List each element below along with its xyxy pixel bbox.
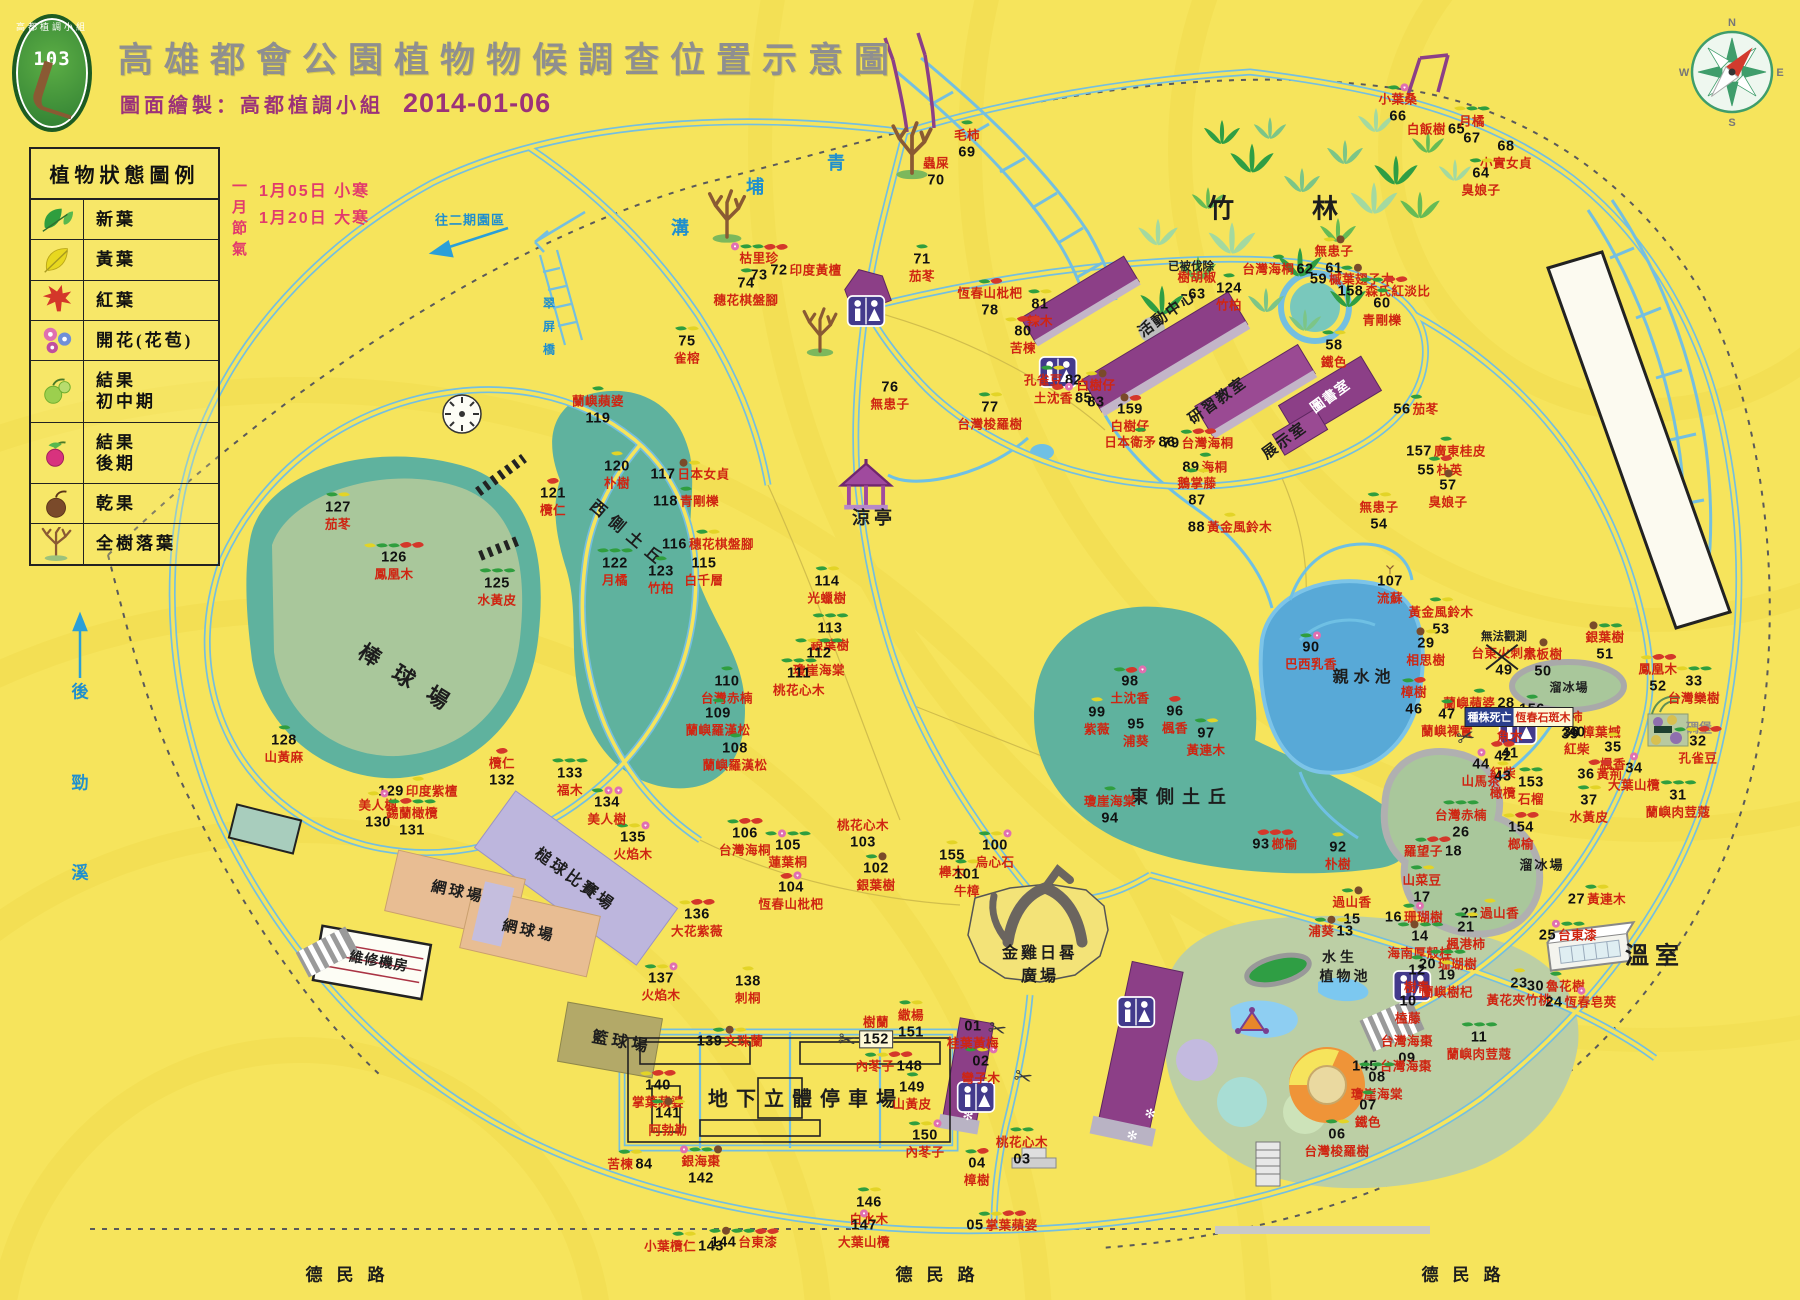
plant-name: 浦葵 xyxy=(1308,925,1334,939)
plant-marker-26: 台灣赤楠26 xyxy=(1435,799,1487,840)
plant-number: 85 xyxy=(1075,391,1092,407)
plant-number: 18 xyxy=(1445,844,1462,860)
plant-number: 110 xyxy=(715,673,740,689)
plant-number: 111 xyxy=(787,665,811,681)
plant-marker-77: 77台灣梭羅樹 xyxy=(957,391,1022,432)
plant-marker-11: 11蘭嶼肉荳蔻 xyxy=(1446,1021,1511,1062)
plant-status-icons xyxy=(1490,740,1516,748)
plant-marker-66: 小葉桑66 xyxy=(1378,83,1417,124)
plant-status-icons xyxy=(730,242,788,250)
plant-marker-54: 無患子54 xyxy=(1359,491,1398,532)
plant-marker-33: 33台灣欒樹 xyxy=(1668,665,1720,706)
plant-name: 山黃皮 xyxy=(892,1097,931,1111)
plant-name: 茄苳 xyxy=(909,269,935,283)
area-label: 溫室 xyxy=(1625,936,1685,971)
plant-status-icons xyxy=(1377,565,1403,573)
plant-marker-122: 122月橘 xyxy=(597,547,633,588)
plant-name: 恆春皂莢 xyxy=(1565,996,1617,1010)
plant-name: 繖楊 xyxy=(898,1008,924,1022)
plant-status-icons xyxy=(975,829,1014,837)
plant-status-icons xyxy=(1428,469,1467,477)
plant-name: 榼藤 xyxy=(1395,1011,1421,1025)
plant-status-icons xyxy=(685,697,750,705)
plant-number: 10 xyxy=(1399,993,1416,1009)
plant-status-icons xyxy=(1027,288,1053,296)
plant-number: 150 xyxy=(912,1127,938,1143)
plant-number: 136 xyxy=(684,906,710,922)
plant-number: 37 xyxy=(1580,792,1597,808)
plant-status-icons xyxy=(662,529,754,537)
plant-marker-80: 80苦楝 xyxy=(1005,315,1041,356)
plant-marker-90: 90巴西乳香 xyxy=(1285,631,1337,672)
plant-status-icons xyxy=(1314,235,1353,243)
plant-status-icons xyxy=(1608,752,1660,760)
plant-marker-153: 153石榴 xyxy=(1518,766,1544,807)
plant-status-icons xyxy=(810,612,849,620)
area-label: 往二期園區 xyxy=(435,210,505,229)
plant-number: 70 xyxy=(927,172,944,188)
map-label-layer: 毛柿69蟲屎70小葉桑66白飯樹65月橘6768小實女貞64臭娘子71茄苳72印… xyxy=(0,0,1800,1300)
plant-name: 大花紫薇 xyxy=(671,924,723,938)
plant-status-icons xyxy=(1285,631,1337,639)
plant-number: 152 xyxy=(859,1030,893,1048)
plant-marker-119: 蘭嶼蘋婆119 xyxy=(572,385,624,426)
plant-number: 01 xyxy=(964,1018,981,1034)
plant-name: 山菜豆 xyxy=(1402,873,1441,887)
plant-marker-139: 139文珠蘭 xyxy=(697,1026,764,1051)
plant-name: 台灣欒樹 xyxy=(1668,691,1720,705)
plant-number: 105 xyxy=(775,837,801,853)
plant-status-icons xyxy=(1304,1118,1369,1126)
plant-marker-84: 苦楝84 xyxy=(607,1149,652,1174)
area-label: 涼亭 xyxy=(852,504,896,530)
plant-number: 154 xyxy=(1508,819,1534,835)
plant-name: 樟樹 xyxy=(1401,685,1427,699)
plant-status-icons xyxy=(709,1227,779,1235)
plant-marker-108: 108蘭嶼羅漢松 xyxy=(702,732,767,773)
plant-status-icons xyxy=(1332,886,1371,894)
plant-status-icons xyxy=(1523,638,1562,646)
plant-status-icons xyxy=(773,657,825,665)
plant-number: 107 xyxy=(1377,573,1403,589)
plant-name: 阿勃勒 xyxy=(648,1123,687,1137)
plant-name: 大葉山欖 xyxy=(1608,778,1660,792)
plant-name: 白飯樹 xyxy=(1407,123,1446,137)
plant-name: 牛樟 xyxy=(954,884,980,898)
plant-name: 掌葉蘋婆 xyxy=(986,1219,1038,1233)
plant-status-icons xyxy=(1638,653,1677,661)
plant-marker-18: 羅望子18 xyxy=(1404,836,1462,861)
park-map: ✻ ✻ ✻ xyxy=(0,0,1800,1300)
plant-status-icons xyxy=(1443,688,1514,696)
plant-number: 76 xyxy=(881,379,898,395)
plant-marker-92: 92朴樹 xyxy=(1325,831,1351,872)
plant-status-icons xyxy=(1216,272,1242,280)
plant-number: 109 xyxy=(705,705,731,721)
plant-number: 25 xyxy=(1539,928,1556,944)
plant-name: 相思樹 xyxy=(1406,653,1445,667)
plant-marker-88: 88黃金風鈴木 xyxy=(1188,512,1272,537)
plant-name: 大葉山欖 xyxy=(838,1235,890,1249)
plant-number: 36 xyxy=(1577,767,1594,783)
plant-number: 92 xyxy=(1329,839,1346,855)
plant-number: 32 xyxy=(1689,733,1706,749)
plant-number: 84 xyxy=(635,1157,652,1173)
plant-number: 64 xyxy=(1472,165,1489,181)
plant-status-icons xyxy=(1417,455,1462,463)
plant-marker-114: 114光蠟樹 xyxy=(807,565,846,606)
plant-name: 蘭嶼蘋婆 xyxy=(572,394,624,408)
plant-name: 無患子 xyxy=(1359,500,1398,514)
plant-number: 135 xyxy=(620,829,646,845)
plant-marker-76: 76無患子 xyxy=(870,379,909,412)
plant-status-icons xyxy=(1362,287,1401,295)
plant-status-icons xyxy=(1110,393,1149,401)
area-label: 金雞日晷 xyxy=(1002,939,1078,963)
plant-number: 151 xyxy=(898,1024,924,1040)
plant-number: 27 xyxy=(1568,892,1585,908)
plant-status-icons xyxy=(765,829,811,837)
pruned-scissors-icon: ✂ xyxy=(1011,1064,1035,1093)
plant-number: 149 xyxy=(899,1079,925,1095)
plant-marker-149: 149山黃皮 xyxy=(892,1071,931,1112)
plant-number: 104 xyxy=(778,879,804,895)
plant-name: 橄欖 xyxy=(1490,786,1516,800)
plant-status-icons xyxy=(1378,83,1417,91)
plant-name: 蟲屎 xyxy=(923,156,949,170)
plant-name: 欖仁 xyxy=(489,756,515,770)
plant-status-icons xyxy=(996,1126,1048,1134)
plant-status-icons xyxy=(713,267,778,275)
plant-name: 光蠟樹 xyxy=(807,591,846,605)
plant-marker-13: 浦葵13 xyxy=(1308,916,1353,941)
plant-name: 山黃麻 xyxy=(264,750,303,764)
plant-status-icons xyxy=(1490,760,1516,768)
plant-number: 115 xyxy=(692,555,717,571)
plant-marker-56: 56茄苳 xyxy=(1393,394,1438,419)
plant-number: 138 xyxy=(735,973,761,989)
plant-marker-93: 93榔榆 xyxy=(1252,829,1297,854)
plant-marker-74: 74穗花棋盤腳 xyxy=(713,267,778,308)
area-label: 翠 xyxy=(543,295,555,312)
plant-status-icons xyxy=(607,1149,652,1157)
plant-name: 紅柴 xyxy=(1564,742,1590,756)
plant-status-icons xyxy=(1084,785,1136,793)
plant-marker-04: 04樟樹 xyxy=(964,1147,990,1188)
plant-status-icons xyxy=(1188,512,1272,520)
area-label: 槌球比賽場 xyxy=(531,840,622,915)
plant-status-icons xyxy=(849,1186,888,1194)
plant-status-icons xyxy=(1387,920,1452,928)
plant-name: 過山香 xyxy=(1480,907,1519,921)
plant-number: 30 xyxy=(1527,979,1544,995)
plant-marker-25: 25台東漆 xyxy=(1539,920,1597,945)
plant-marker-147: 147大葉山欖 xyxy=(838,1209,890,1250)
plant-marker-78: 恆春山枇杷78 xyxy=(957,277,1022,318)
plant-marker-24: 24恆春皂莢 xyxy=(1545,987,1616,1012)
plant-marker-154: 154榔榆 xyxy=(1503,811,1539,852)
dead-plant-note-box: 種株死亡恆春石斑木 xyxy=(1465,707,1574,727)
plant-name: 彎子木 xyxy=(961,1071,1000,1085)
plant-number: 133 xyxy=(557,765,583,781)
plant-marker-10: 10榼藤 xyxy=(1395,993,1421,1026)
plant-number: 140 xyxy=(645,1077,671,1093)
plant-status-icons xyxy=(1539,920,1597,928)
plant-status-icons xyxy=(964,1147,990,1155)
plant-number: 04 xyxy=(968,1155,985,1171)
plant-number: 57 xyxy=(1439,477,1456,493)
plant-status-icons xyxy=(1568,884,1626,892)
plant-number: 124 xyxy=(1216,280,1242,296)
plant-number: 52 xyxy=(1649,678,1666,694)
plant-status-icons xyxy=(1402,864,1441,872)
plant-number: 33 xyxy=(1685,673,1702,689)
plant-name: 雀榕 xyxy=(674,351,700,365)
plant-status-icons xyxy=(1401,676,1427,684)
plant-number: 102 xyxy=(863,860,889,876)
plant-status-icons xyxy=(587,786,626,794)
plant-status-icons xyxy=(701,665,753,673)
area-label: 德民路 xyxy=(896,1261,989,1286)
plant-number: 68 xyxy=(1497,138,1514,154)
area-label: 屏 xyxy=(543,318,555,335)
plant-status-icons xyxy=(954,858,980,866)
plant-number: 50 xyxy=(1534,663,1551,679)
plant-number: 60 xyxy=(1373,295,1390,311)
plant-status-icons xyxy=(1406,436,1486,444)
area-label: 青 xyxy=(827,149,845,175)
plant-name: 黃金風鈴木 xyxy=(1408,605,1473,619)
plant-number: 144 xyxy=(711,1235,737,1251)
plant-name: 印度黃檀 xyxy=(790,264,842,278)
plant-status-icons xyxy=(957,277,1022,285)
plant-name: 瓊崖海棠 xyxy=(1084,794,1136,808)
plant-marker-70: 蟲屎70 xyxy=(923,155,949,188)
plant-status-icons xyxy=(1461,157,1500,165)
plant-name: 日本衛矛 xyxy=(1104,436,1156,450)
plant-name: 鐵色 xyxy=(1321,355,1347,369)
plant-number: 106 xyxy=(732,825,758,841)
plant-marker-104: 104恆春山枇杷 xyxy=(758,871,823,912)
plant-status-icons xyxy=(1182,452,1227,460)
plant-number: 80 xyxy=(1014,323,1031,339)
plant-number: 23 xyxy=(1510,975,1527,991)
area-label: 研習教室 xyxy=(1183,372,1250,429)
plant-number: 46 xyxy=(1405,701,1422,717)
plant-status-icons xyxy=(905,1119,944,1127)
plant-status-icons xyxy=(1162,428,1233,436)
plant-number: 69 xyxy=(958,144,975,160)
plant-name: 月橘 xyxy=(1459,114,1485,128)
plant-status-icons xyxy=(648,1097,687,1105)
plant-status-icons xyxy=(671,898,723,906)
plant-status-icons xyxy=(719,817,771,825)
plant-marker-87: 鵝掌藤87 xyxy=(1177,467,1216,508)
plant-number: 79 xyxy=(1162,436,1179,452)
plant-name: 錫蘭橄欖 xyxy=(386,806,438,820)
plant-name: 浦葵 xyxy=(1123,734,1149,748)
plant-number: 103 xyxy=(850,834,876,850)
plant-marker-50: 黑板樹50 xyxy=(1523,638,1562,679)
plant-name: 孔雀豆 xyxy=(1678,751,1717,765)
plant-name: 台東漆 xyxy=(738,1236,777,1250)
plant-number: 146 xyxy=(856,1194,882,1210)
plant-name: 過山香 xyxy=(1332,895,1371,909)
plant-number: 108 xyxy=(722,740,748,756)
dead-note: 種株死亡 xyxy=(1466,708,1514,726)
plant-number: 34 xyxy=(1625,760,1642,776)
plant-number: 159 xyxy=(1117,401,1143,417)
plant-name: 臭娘子 xyxy=(1428,495,1467,509)
plant-marker-27: 27黃連木 xyxy=(1568,884,1626,909)
area-label: 維修機房 xyxy=(348,946,411,976)
plant-marker-43: 43橄欖 xyxy=(1490,760,1516,801)
plant-status-icons xyxy=(632,1069,684,1077)
plant-status-icons xyxy=(1435,799,1487,807)
plant-status-icons xyxy=(793,637,845,645)
plant-status-icons xyxy=(1308,916,1353,924)
plant-marker-117: 117日本女貞 xyxy=(651,459,730,484)
plant-number: 56 xyxy=(1393,402,1410,418)
plant-number: 03 xyxy=(1013,1151,1030,1167)
plant-number: 93 xyxy=(1252,837,1269,853)
plant-name: 楓香 xyxy=(1162,721,1188,735)
plant-marker-69: 毛柿69 xyxy=(954,119,980,160)
plant-name: 福木 xyxy=(557,783,583,797)
plant-status-icons xyxy=(838,1209,890,1217)
plant-number: 96 xyxy=(1166,703,1183,719)
map-note: 已被伐除 xyxy=(1168,258,1214,274)
plant-status-icons xyxy=(1084,696,1110,704)
plant-number: 142 xyxy=(688,1170,714,1186)
plant-number: 47 xyxy=(1438,706,1455,722)
plant-marker-142: 銀海棗142 xyxy=(679,1145,723,1186)
plant-marker-03: 桃花心木03 xyxy=(996,1126,1048,1167)
plant-name: 樹蘭 xyxy=(863,1015,889,1029)
plant-status-icons xyxy=(641,962,680,970)
plant-number: 114 xyxy=(815,573,840,589)
plant-number: 31 xyxy=(1669,787,1686,803)
plant-status-icons xyxy=(1545,987,1616,995)
plant-status-icons xyxy=(1252,829,1297,837)
plant-name: 鳳凰木 xyxy=(374,567,413,581)
plant-marker-107: 107流蘇 xyxy=(1377,565,1403,606)
plant-number: 75 xyxy=(678,333,695,349)
plant-marker-57: 57臭娘子 xyxy=(1428,469,1467,510)
plant-status-icons xyxy=(1359,491,1398,499)
plant-status-icons xyxy=(477,567,516,575)
plant-number: 153 xyxy=(1518,774,1544,790)
plant-name: 蓮葉桐 xyxy=(768,855,807,869)
plant-number: 11 xyxy=(1471,1029,1487,1045)
plant-number: 14 xyxy=(1411,928,1428,944)
plant-name: 蘭嶼肉荳蔻 xyxy=(1645,805,1710,819)
plant-name: 台灣赤楠 xyxy=(1435,808,1487,822)
plant-status-icons xyxy=(1421,959,1473,967)
plant-marker-60: 60青剛櫟 xyxy=(1362,287,1401,328)
plant-status-icons xyxy=(674,325,700,333)
area-label: 網球場 xyxy=(429,875,486,907)
plant-marker-37: 37水黃皮 xyxy=(1569,784,1608,825)
plant-marker-58: 58鐵色 xyxy=(1321,329,1347,370)
plant-name: 蘭嶼羅漢松 xyxy=(702,758,767,772)
plant-number: 122 xyxy=(602,555,628,571)
plant-marker-127: 127茄苳 xyxy=(325,491,351,532)
plant-number: 147 xyxy=(851,1217,877,1233)
plant-number: 120 xyxy=(604,458,630,474)
plant-number: 128 xyxy=(271,732,297,748)
area-label: 廣場 xyxy=(1021,962,1059,986)
plant-number: 87 xyxy=(1188,492,1205,508)
plant-name: 日本女貞 xyxy=(677,468,729,482)
plant-status-icons xyxy=(1351,1061,1403,1069)
plant-status-icons xyxy=(552,757,588,765)
plant-status-icons xyxy=(364,541,424,549)
plant-marker-138: 138刺桐 xyxy=(735,965,761,1006)
plant-number: 63 xyxy=(1188,286,1205,302)
area-label: 地下立體停車場 xyxy=(708,1083,904,1112)
plant-number: 58 xyxy=(1325,337,1342,353)
area-label: 植物池 xyxy=(1320,966,1371,986)
plant-name: 石榴 xyxy=(1518,792,1544,806)
plant-status-icons xyxy=(1162,695,1188,703)
plant-name: 火焰木 xyxy=(641,988,680,1002)
area-label: 竹 林 xyxy=(1208,189,1364,226)
plant-name: 無患子 xyxy=(870,397,909,411)
plant-status-icons xyxy=(939,839,965,847)
area-label: 網球場 xyxy=(500,914,557,946)
plant-name: 青剛櫟 xyxy=(680,495,719,509)
plant-status-icons xyxy=(909,243,935,251)
area-label: 溜冰場 xyxy=(1519,855,1564,874)
plant-status-icons xyxy=(807,565,846,573)
plant-name: 羅望子 xyxy=(1404,845,1443,859)
plant-marker-111: 111桃花心木 xyxy=(773,657,825,698)
plant-status-icons xyxy=(540,477,566,485)
plant-name: 黃連木 xyxy=(1186,743,1225,757)
plant-status-icons xyxy=(1569,784,1608,792)
plant-number: 71 xyxy=(913,251,930,267)
plant-status-icons xyxy=(1408,596,1473,604)
plant-marker-34: 34大葉山欖 xyxy=(1608,752,1660,793)
plant-name: 美人樹 xyxy=(587,812,626,826)
plant-status-icons xyxy=(1024,365,1082,373)
plant-status-icons xyxy=(735,965,761,973)
plant-marker-150: 150內苳子 xyxy=(905,1119,944,1160)
plant-marker-102: 102銀葉樹 xyxy=(856,852,895,893)
plant-name: 茄苳 xyxy=(1413,403,1439,417)
area-label: 籃球場 xyxy=(590,1023,653,1057)
plant-marker-05: 05掌葉蘋婆 xyxy=(966,1210,1037,1235)
plant-name: 桃花心木 xyxy=(837,818,889,832)
plant-number: 119 xyxy=(586,410,611,426)
plant-status-icons xyxy=(1585,621,1624,629)
plant-status-icons xyxy=(1406,627,1445,635)
plant-name: 火焰木 xyxy=(613,847,652,861)
plant-number: 90 xyxy=(1302,639,1319,655)
plant-number: 101 xyxy=(954,866,980,882)
plant-status-icons xyxy=(1518,766,1544,774)
plant-name: 恆春山枇杷 xyxy=(758,897,823,911)
plant-status-icons xyxy=(604,450,630,458)
plant-name: 竹柏 xyxy=(648,581,674,595)
plant-status-icons xyxy=(1461,898,1519,906)
plant-number: 51 xyxy=(1596,646,1613,662)
plant-marker-94: 瓊崖海棠94 xyxy=(1084,785,1136,826)
plant-name: 茄苳 xyxy=(325,517,351,531)
plant-status-icons xyxy=(1503,811,1539,819)
plant-marker-71: 71茄苳 xyxy=(909,243,935,284)
